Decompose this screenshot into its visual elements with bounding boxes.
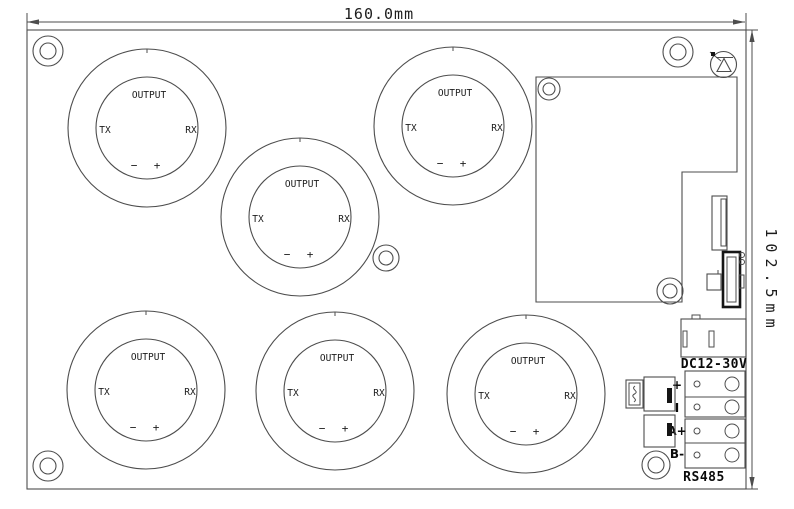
dc-power-jack: [681, 315, 746, 357]
rx-label: RX: [185, 125, 197, 136]
plus-label: +: [153, 421, 160, 434]
tx-label: TX: [252, 214, 264, 225]
tx-label: TX: [478, 391, 490, 402]
relay-block-2: [644, 415, 675, 447]
minus-label: −: [319, 422, 326, 435]
relay-block-1: [644, 377, 675, 411]
plus-label: +: [533, 425, 540, 438]
module-outer-ring: [447, 315, 605, 473]
terminal-label-b-minus: B-: [670, 447, 684, 461]
mounting-hole-bottom-left: [33, 451, 63, 481]
controller-module-outline: [536, 77, 737, 302]
fuse-squiggle-icon: [633, 386, 636, 402]
output-label: OUTPUT: [131, 352, 166, 363]
dimension-height: 102.5mm: [746, 30, 780, 489]
width-dimension-label: 160.0mm: [344, 5, 414, 23]
side-switch-connector: [723, 252, 745, 307]
dimension-width: 160.0mm: [27, 5, 746, 30]
plus-label: +: [154, 159, 161, 172]
terminal-label-plus: +: [672, 378, 682, 392]
output-label: OUTPUT: [320, 353, 355, 364]
rs485-label: RS485: [683, 470, 725, 485]
mounting-hole-module-area-2: [657, 278, 683, 304]
sensor-module-top-right: OUTPUT TX RX − +: [374, 47, 532, 205]
plus-label: +: [460, 157, 467, 170]
dc-power-label: DC12-30V: [681, 357, 748, 372]
mounting-hole-module-area: [538, 78, 560, 100]
output-label: OUTPUT: [132, 90, 167, 101]
arrowhead-left: [27, 19, 39, 24]
plus-label: +: [307, 248, 314, 261]
module-outer-ring: [256, 312, 414, 470]
module-outer-ring: [374, 47, 532, 205]
rx-label: RX: [564, 391, 576, 402]
rx-label: RX: [184, 387, 196, 398]
arrowhead-top: [749, 30, 754, 42]
output-label: OUTPUT: [511, 356, 546, 367]
card-slot-connector: [712, 196, 727, 250]
rx-label: RX: [491, 123, 503, 134]
arrowhead-right: [733, 19, 745, 24]
fuse-component: [626, 380, 643, 408]
output-label: OUTPUT: [438, 88, 473, 99]
mounting-hole-top-left: [33, 36, 63, 66]
terminal-block: [685, 371, 745, 468]
diode-symbol-icon: [710, 52, 737, 78]
tx-label: TX: [287, 388, 299, 399]
rx-label: RX: [373, 388, 385, 399]
tx-label: TX: [405, 123, 417, 134]
minus-label: −: [510, 425, 517, 438]
mounting-hole-top-right: [663, 37, 693, 67]
sensor-module-bottom-left: OUTPUT TX RX − +: [67, 311, 225, 469]
plus-label: +: [342, 422, 349, 435]
pushbutton-component: [707, 270, 721, 290]
minus-label: −: [131, 159, 138, 172]
minus-label: −: [130, 421, 137, 434]
rx-label: RX: [338, 214, 350, 225]
sensor-module-center: OUTPUT TX RX − +: [221, 138, 379, 296]
module-outer-ring: [67, 311, 225, 469]
minus-label: −: [284, 248, 291, 261]
module-outer-ring: [68, 49, 226, 207]
height-dimension-label: 102.5mm: [762, 228, 780, 333]
arrowhead-bottom: [749, 477, 754, 489]
output-label: OUTPUT: [285, 179, 320, 190]
minus-label: −: [437, 157, 444, 170]
pcb-dimension-drawing: 160.0mm 102.5mm OUTPUT TX RX − + OUTPUT …: [0, 0, 794, 509]
sensor-module-bottom-right: OUTPUT TX RX − +: [447, 315, 605, 473]
tx-label: TX: [98, 387, 110, 398]
sensor-module-top-left: OUTPUT TX RX − +: [68, 49, 226, 207]
module-outer-ring: [221, 138, 379, 296]
tx-label: TX: [99, 125, 111, 136]
mounting-hole-center: [373, 245, 399, 271]
sensor-module-bottom-middle: OUTPUT TX RX − +: [256, 312, 414, 470]
mounting-hole-terminal-area: [642, 451, 670, 479]
